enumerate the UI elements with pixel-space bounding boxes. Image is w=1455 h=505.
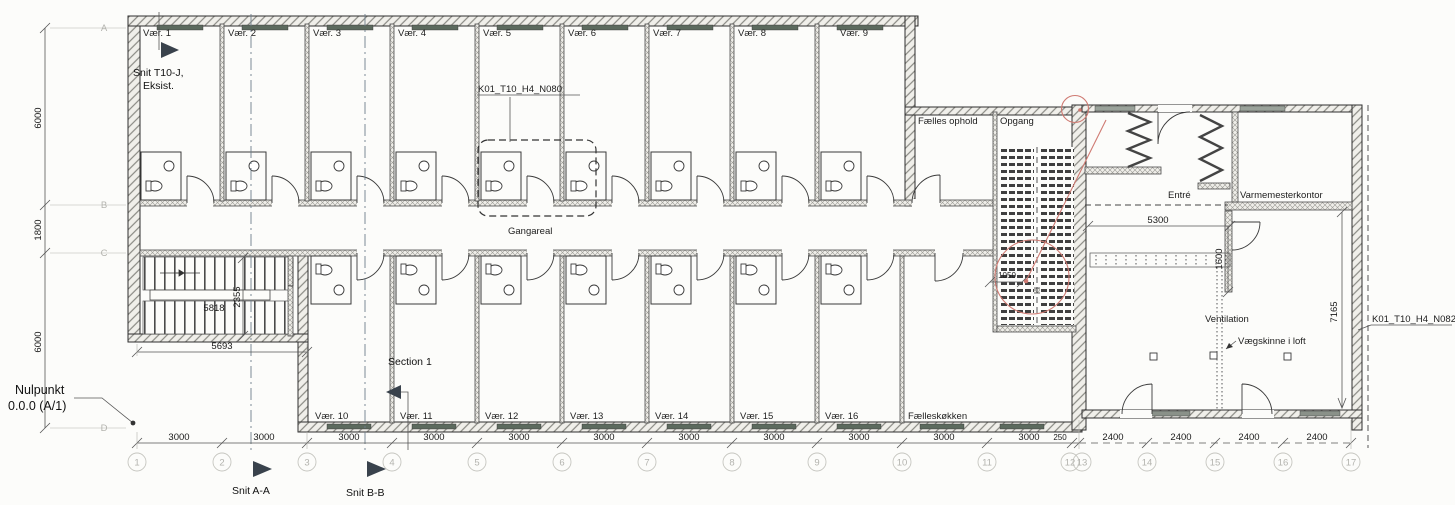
section1-label: Section 1	[388, 356, 432, 368]
interior-walls	[140, 112, 1352, 336]
grid-row-b: B	[101, 200, 107, 211]
grid-labels: 1 2 3 4 5 6 7 8 9 10 11 12 13 14 15 16 1…	[101, 23, 1357, 469]
grid-row-d: D	[101, 423, 108, 434]
grid-col-10: 10	[897, 458, 908, 469]
snit-aa-label: Snit A-A	[232, 485, 270, 497]
room-label-vaer-5: Vær. 5	[483, 28, 511, 39]
dim-3000-7: 3000	[678, 432, 699, 443]
vaegskinne-leader	[1226, 341, 1236, 349]
dim-3000-1: 3000	[168, 432, 189, 443]
dim-left-1800: 1800	[33, 219, 44, 240]
grid-col-12: 12	[1065, 458, 1076, 469]
window-segments	[157, 25, 1340, 429]
ref-n080-label: K01_T10_H4_N080	[478, 84, 562, 95]
dim-2400-1: 2400	[1102, 432, 1123, 443]
room-label-vaer-13: Vær. 13	[570, 411, 603, 422]
dim-2400-3: 2400	[1238, 432, 1259, 443]
room-label-vaer-11: Vær. 11	[400, 411, 433, 422]
nulpunkt-leader	[74, 398, 135, 425]
grid-col-1: 1	[134, 458, 139, 469]
grid-col-6: 6	[559, 458, 564, 469]
grid-col-8: 8	[729, 458, 734, 469]
grid-col-16: 16	[1278, 458, 1289, 469]
snit-bb-label: Snit B-B	[346, 487, 385, 499]
room-label-vaer-3: Vær. 3	[313, 28, 341, 39]
dim-250: 250	[1053, 433, 1067, 442]
dim-1600: 1600	[1214, 248, 1225, 269]
grid-col-11: 11	[982, 458, 992, 469]
room-label-vaer-2: Vær. 2	[228, 28, 256, 39]
snit-aa-arrow-icon	[253, 461, 272, 477]
dim-2400-2: 2400	[1170, 432, 1191, 443]
room-label-vaer-8: Vær. 8	[738, 28, 766, 39]
dim-3000-6: 3000	[593, 432, 614, 443]
section-markers	[159, 12, 408, 477]
room-label-vaer-9: Vær. 9	[840, 28, 868, 39]
dim-1050: 1050	[998, 271, 1016, 280]
room-label-vaer-14: Vær. 14	[655, 411, 688, 422]
dim-2355: 2355	[232, 286, 243, 307]
floor-plan-drawing: Vær. 1 Vær. 2 Vær. 3 Vær. 4 Vær. 5 Vær. …	[0, 0, 1455, 505]
dim-3000-10: 3000	[933, 432, 954, 443]
grid-col-9: 9	[814, 458, 819, 469]
grid-col-2: 2	[219, 458, 224, 469]
grid-col-5: 5	[474, 458, 479, 469]
dim-3000-2: 3000	[253, 432, 274, 443]
room-label-vaer-6: Vær. 6	[568, 28, 596, 39]
dim-3000-11: 3000	[1018, 432, 1039, 443]
grid-col-15: 15	[1210, 458, 1221, 469]
grid-col-14: 14	[1142, 458, 1153, 469]
dim-3000-9: 3000	[848, 432, 869, 443]
room-label-vaer-7: Vær. 7	[653, 28, 681, 39]
grid-col-17: 17	[1346, 458, 1357, 469]
dim-5693: 5693	[211, 341, 232, 352]
grid-bubbles	[128, 453, 1360, 471]
dim-3000-3: 3000	[338, 432, 359, 443]
room-divider-walls	[220, 24, 904, 423]
floor-plan-sheet: Vær. 1 Vær. 2 Vær. 3 Vær. 4 Vær. 5 Vær. …	[0, 0, 1455, 505]
ref-box-n080	[478, 97, 596, 216]
ref-n082-label: K01_T10_H4_N082	[1372, 314, 1455, 325]
dim-5818: 5818	[203, 303, 224, 314]
vaegskinne-label: Vægskinne i loft	[1238, 336, 1306, 347]
dim-3000-8: 3000	[763, 432, 784, 443]
dim-3000-5: 3000	[508, 432, 529, 443]
n082-leader	[1358, 325, 1452, 330]
grid-row-a: A	[101, 23, 108, 34]
room-label-vaer-1: Vær. 1	[143, 28, 171, 39]
dim-5300: 5300	[1147, 215, 1168, 226]
snit-t10-arrow-icon	[161, 42, 179, 58]
snit-t10-label-line2: Eksist.	[143, 80, 174, 92]
room-label-vaer-12: Vær. 12	[485, 411, 518, 422]
dim-left-6000a: 6000	[33, 107, 44, 128]
nulpunkt-label-line1: Nulpunkt	[15, 383, 65, 397]
room-label-office: Varmemesterkontor	[1240, 190, 1323, 201]
room-label-corridor: Gangareal	[508, 226, 552, 237]
grid-col-4: 4	[389, 458, 394, 469]
dim-3000-4: 3000	[423, 432, 444, 443]
dimension-lines	[40, 23, 1356, 449]
grid-row-c: C	[101, 248, 108, 259]
room-label-vaer-4: Vær. 4	[398, 28, 426, 39]
grid-col-13: 13	[1077, 458, 1088, 469]
stairs-left	[143, 257, 288, 334]
ventilation-label: Ventilation	[1205, 314, 1249, 325]
dim-left-6000b: 6000	[33, 331, 44, 352]
room-label-vaer-10: Vær. 10	[315, 411, 348, 422]
dim-2400-4: 2400	[1306, 432, 1327, 443]
nulpunkt-label-line2: 0.0.0 (A/1)	[8, 399, 66, 413]
snit-t10-label-line1: Snit T10-J,	[133, 67, 184, 79]
grid-col-7: 7	[644, 458, 649, 469]
room-label-vaer-16: Vær. 16	[825, 411, 858, 422]
room-label-opgang: Opgang	[1000, 116, 1034, 127]
exterior-walls	[128, 16, 1362, 432]
grid-col-3: 3	[304, 458, 309, 469]
room-label-vaer-15: Vær. 15	[740, 411, 773, 422]
room-label-common: Fælles ophold	[918, 116, 978, 127]
room-label-entry: Entré	[1168, 190, 1191, 201]
dim-7165: 7165	[1329, 301, 1340, 322]
room-label-kitchen: Fælleskøkken	[908, 411, 967, 422]
